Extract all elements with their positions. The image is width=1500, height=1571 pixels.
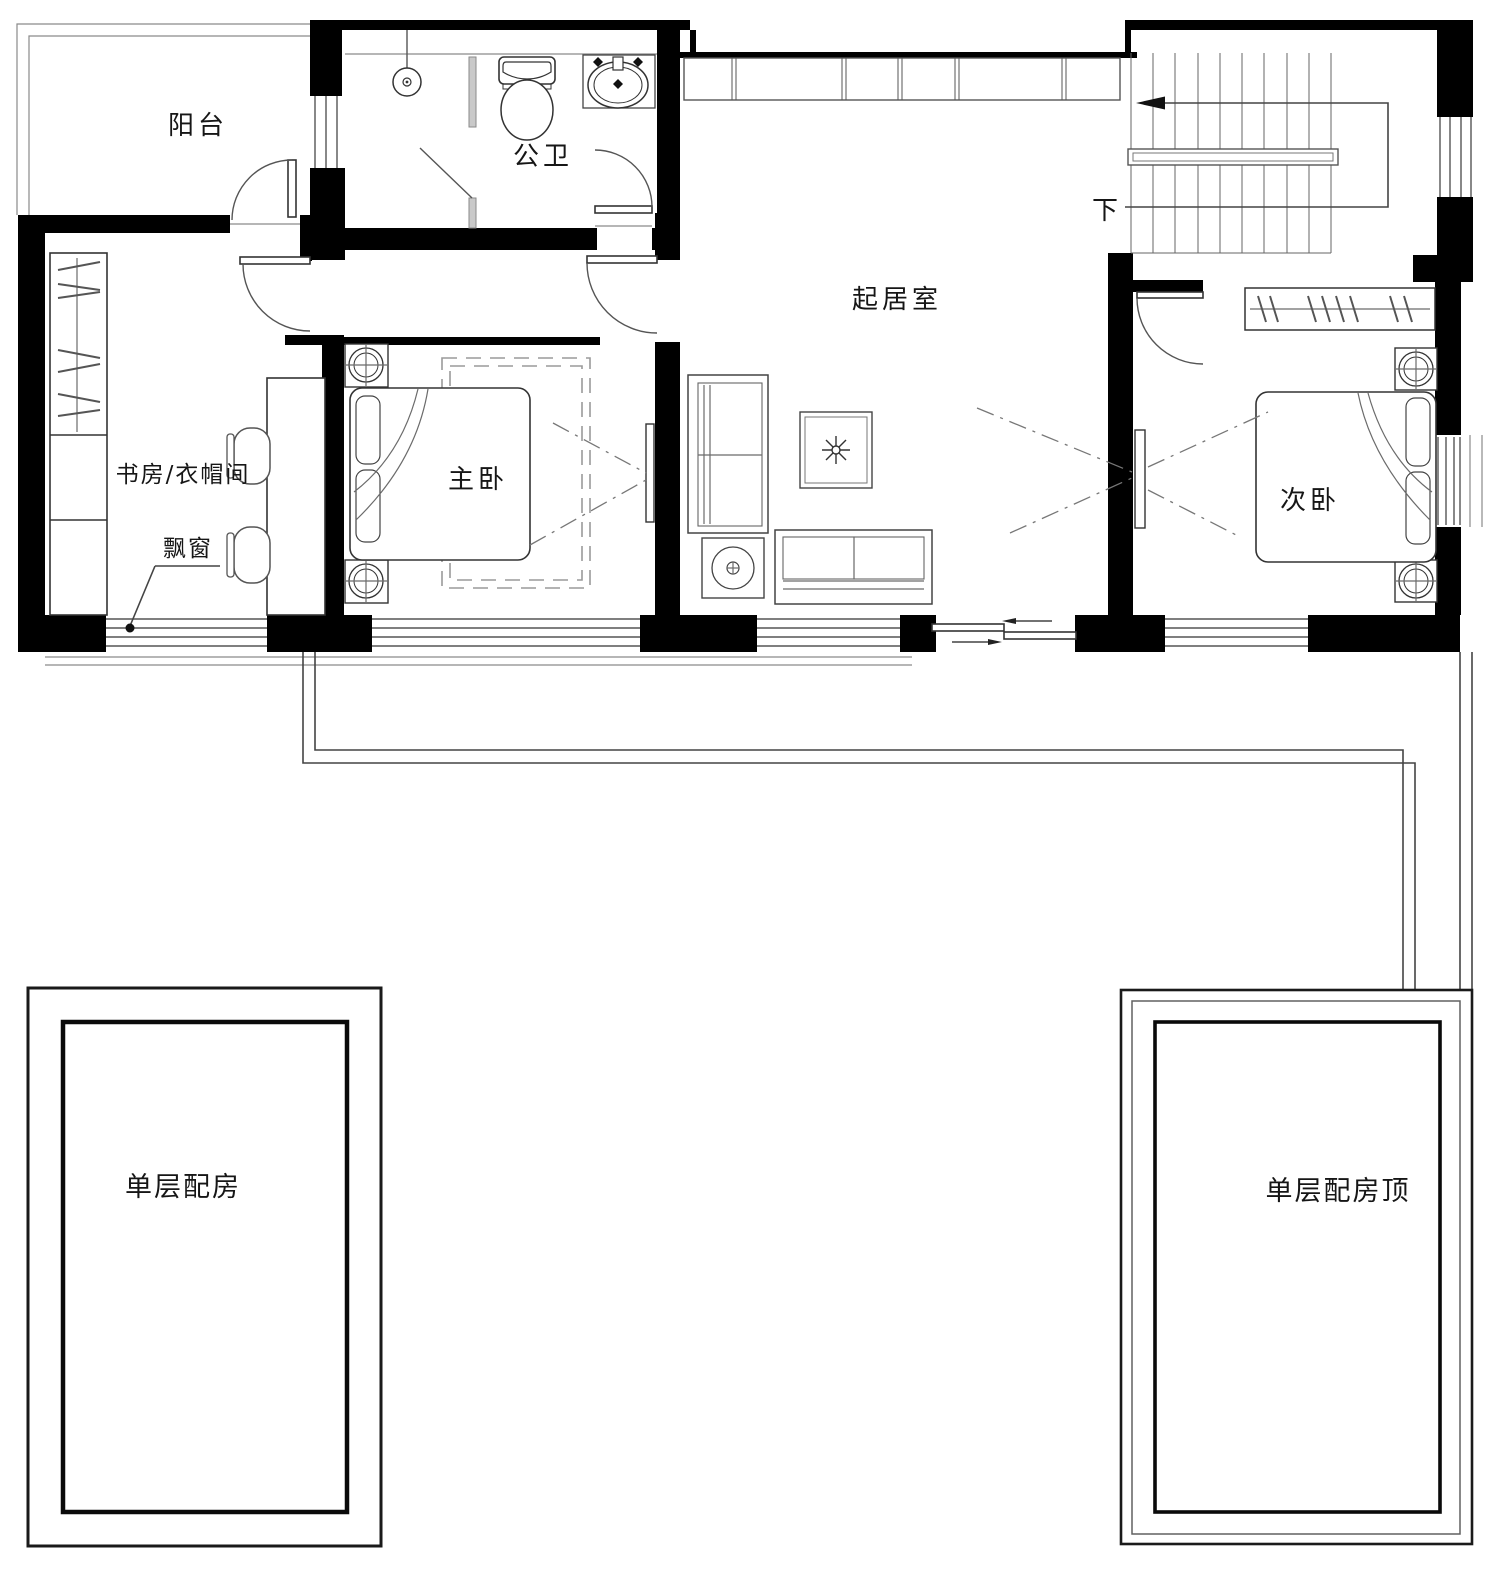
second-bedroom	[1135, 288, 1437, 602]
stairs-down-label: 下	[1092, 196, 1122, 226]
toilet-icon	[499, 57, 555, 140]
sofa-horizontal	[775, 530, 932, 604]
annex-left-label: 单层配房	[125, 1172, 241, 1203]
second-bed	[1256, 392, 1436, 562]
bathroom-fixtures	[345, 30, 657, 228]
annex-roof-outline	[303, 652, 1472, 1001]
second-tv	[1135, 430, 1145, 528]
shower-partition	[420, 57, 476, 228]
stair-east-window	[1440, 117, 1471, 197]
bathroom-door	[595, 150, 652, 226]
wardrobe-second	[1245, 288, 1435, 330]
bay-window-callout	[126, 566, 221, 633]
study-desk	[267, 378, 325, 615]
coffee-table	[800, 412, 872, 488]
bay-window-sill-lines	[45, 657, 912, 665]
living-cabinets	[684, 58, 1120, 100]
stair-handrail	[1128, 149, 1338, 165]
second-nightstand-bottom	[1395, 560, 1437, 602]
floor-plan-drawing: 下	[0, 0, 1500, 1571]
study-label: 书房/衣帽间	[116, 462, 251, 488]
second-bedroom-door	[1137, 292, 1203, 364]
master-nightstand-top	[345, 344, 388, 387]
end-table-lamp	[702, 538, 764, 598]
master-tv	[646, 424, 654, 522]
sink-icon	[583, 55, 655, 108]
study-door	[240, 257, 310, 331]
desk-chair-2	[227, 527, 270, 583]
sliding-door	[932, 618, 1076, 645]
balcony-railing	[17, 24, 312, 215]
floor-plan-page: 下	[0, 0, 1500, 1571]
study-room	[50, 253, 325, 633]
annex-left: 单层配房	[28, 988, 381, 1546]
second-bedroom-east-window	[1438, 435, 1482, 527]
master-nightstand-bottom	[345, 560, 388, 603]
wardrobe-study	[50, 253, 107, 615]
balcony-label: 阳台	[168, 111, 228, 141]
master-tv-sightlines	[530, 423, 646, 545]
balcony-door	[230, 160, 300, 224]
bay-window-label: 飘窗	[163, 536, 213, 562]
living-room-furniture	[688, 375, 1132, 604]
master-window	[372, 619, 640, 646]
corridor-door	[587, 256, 657, 333]
sofa-vertical	[688, 375, 768, 533]
second-bedroom-window	[1165, 619, 1308, 646]
second-nightstand-top	[1395, 348, 1437, 390]
balcony-bathroom-window	[315, 96, 337, 168]
plant-icon	[822, 436, 850, 464]
bay-window	[106, 619, 267, 646]
staircase: 下	[1092, 53, 1388, 253]
living-room-label: 起居室	[852, 285, 942, 315]
master-bedroom-label: 主卧	[448, 465, 508, 495]
second-bedroom-label: 次卧	[1280, 486, 1340, 516]
shower-drain-icon	[393, 30, 421, 96]
bathroom-label: 公卫	[513, 142, 573, 172]
annex-right: 单层配房顶	[1121, 990, 1472, 1544]
living-window	[757, 619, 900, 646]
second-tv-sightlines	[1148, 412, 1268, 537]
annex-right-label: 单层配房顶	[1266, 1176, 1411, 1207]
